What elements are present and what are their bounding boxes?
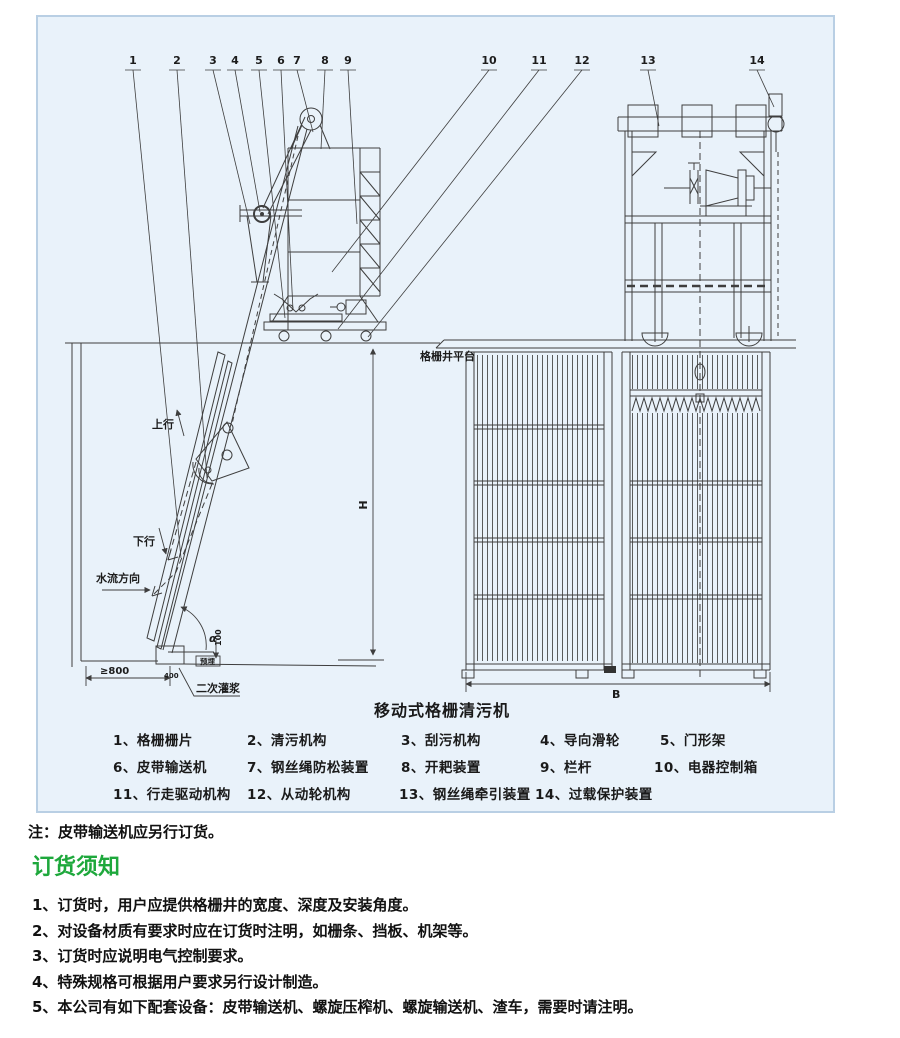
belt-conveyor-note: 注：皮带输送机应另行订货。 — [28, 821, 223, 842]
legend-item-5: 5、门形架 — [660, 729, 726, 749]
callout-5: 5 — [255, 54, 263, 67]
ordering-item-5: 5、本公司有如下配套设备：皮带输送机、螺旋压榨机、螺旋输送机、渣车，需要时请注明… — [32, 995, 642, 1021]
legend-item-7: 7、钢丝绳防松装置 — [247, 756, 369, 776]
label-dim-h: H — [357, 500, 370, 509]
legend-item-8: 8、开耙装置 — [401, 756, 481, 776]
callout-7: 7 — [293, 54, 301, 67]
ordering-item-1: 1、订货时，用户应提供格栅井的宽度、深度及安装角度。 — [32, 893, 642, 919]
legend-item-1: 1、格栅栅片 — [113, 729, 193, 749]
callout-13: 13 — [640, 54, 655, 67]
ordering-heading: 订货须知 — [32, 849, 120, 881]
callout-10: 10 — [481, 54, 497, 67]
label-dim-400: 400 — [164, 672, 179, 680]
label-dim-b: B — [612, 688, 620, 701]
callout-1: 1 — [129, 54, 137, 67]
legend-item-10: 10、电器控制箱 — [654, 756, 758, 776]
ordering-item-3: 3、订货时应说明电气控制要求。 — [32, 944, 642, 970]
catalog-page: { "colors": { "panel_bg": "#e9f2fa", "pa… — [0, 0, 900, 1038]
ordering-item-2: 2、对设备材质有要求时应在订货时注明，如栅条、挡板、机架等。 — [32, 919, 642, 945]
label-grout: 二次灌浆 — [196, 681, 241, 695]
callout-numbers: 1 2 3 4 5 6 7 8 9 10 11 12 13 14 — [129, 54, 765, 67]
legend-item-4: 4、导向滑轮 — [540, 729, 620, 749]
ordering-item-4: 4、特殊规格可根据用户要求另行设计制造。 — [32, 970, 642, 996]
callout-12: 12 — [574, 54, 589, 67]
legend-item-9: 9、栏杆 — [540, 756, 592, 776]
legend-item-6: 6、皮带输送机 — [113, 756, 207, 776]
front-view — [436, 94, 796, 680]
label-min-width: ≥800 — [100, 666, 129, 677]
callout-14: 14 — [749, 54, 765, 67]
callout-2: 2 — [173, 54, 181, 67]
label-embed: 预埋 — [200, 656, 215, 666]
label-up: 上行 — [152, 417, 174, 431]
label-flow-direction: 水流方向 — [96, 571, 140, 585]
legend-item-13: 13、钢丝绳牵引装置 — [399, 783, 531, 803]
callout-6: 6 — [277, 54, 285, 67]
legend-item-2: 2、清污机构 — [247, 729, 327, 749]
label-dim-100: 100 — [214, 629, 223, 646]
drawing-title: 移动式格栅清污机 — [374, 697, 510, 721]
callout-4: 4 — [231, 54, 239, 67]
callout-11: 11 — [531, 54, 546, 67]
legend-item-3: 3、刮污机构 — [401, 729, 481, 749]
callout-8: 8 — [321, 54, 329, 67]
callout-9: 9 — [344, 54, 352, 67]
legend-item-11: 11、行走驱动机构 — [113, 783, 231, 803]
legend-item-14: 14、过载保护装置 — [535, 783, 653, 803]
legend-item-12: 12、从动轮机构 — [247, 783, 351, 803]
callout-3: 3 — [209, 54, 217, 67]
label-platform: 格栅井平台 — [420, 349, 475, 363]
ordering-list: 1、订货时，用户应提供格栅井的宽度、深度及安装角度。 2、对设备材质有要求时应在… — [32, 893, 642, 1021]
label-down: 下行 — [133, 534, 155, 548]
